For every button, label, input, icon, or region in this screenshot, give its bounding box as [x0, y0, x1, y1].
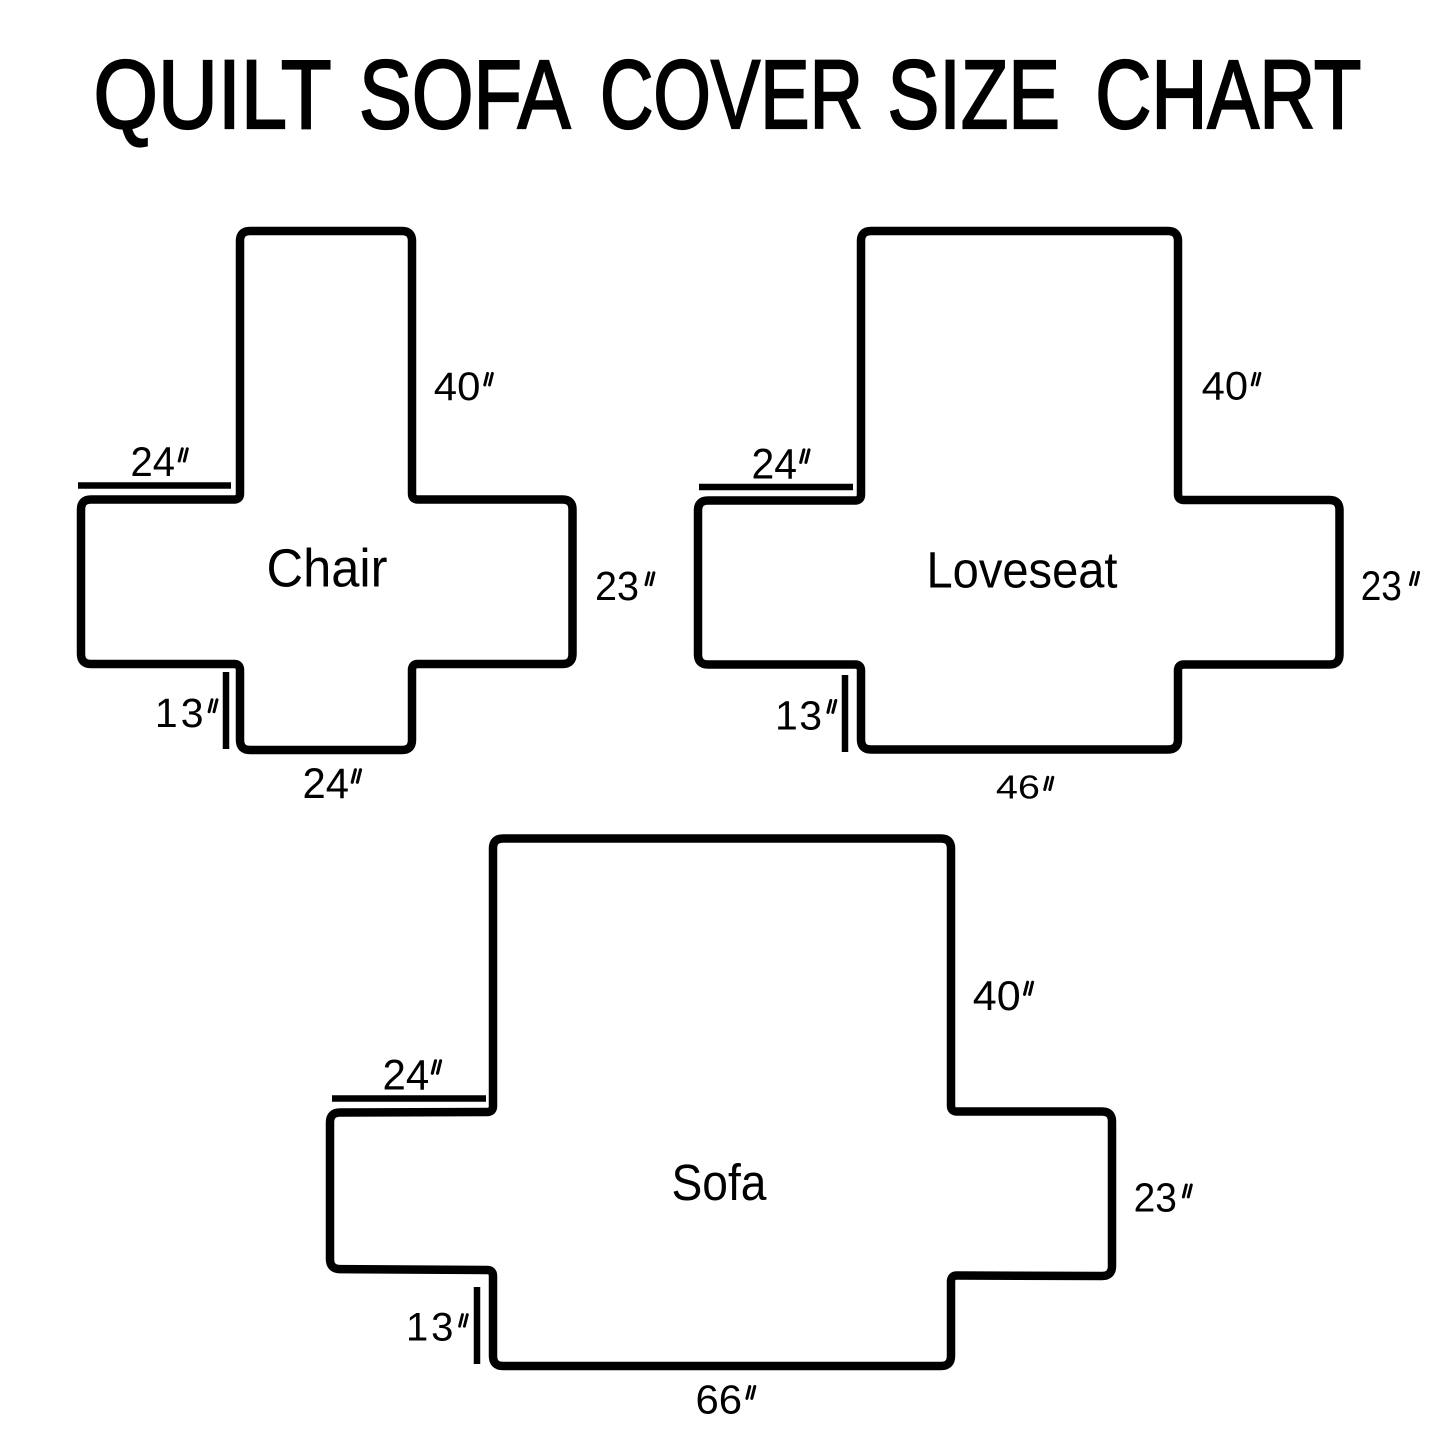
svg-text:23: 23	[1361, 562, 1402, 609]
svg-text:3: 3	[181, 690, 204, 736]
svg-text:24: 24	[383, 1052, 430, 1100]
svg-text:QUILT: QUILT	[94, 40, 332, 149]
svg-text:3: 3	[799, 692, 822, 738]
svg-text:SOFA: SOFA	[359, 40, 571, 149]
svg-text:40: 40	[434, 365, 481, 409]
svg-text:1: 1	[155, 690, 178, 736]
svg-text:40: 40	[1202, 365, 1248, 409]
svg-text:40: 40	[973, 972, 1021, 1019]
svg-text:3: 3	[431, 1305, 453, 1349]
svg-text:COVER: COVER	[600, 40, 863, 149]
svg-text:CHART: CHART	[1095, 40, 1361, 149]
svg-text:46: 46	[996, 769, 1040, 806]
svg-text:SIZE: SIZE	[888, 40, 1061, 149]
svg-text:23: 23	[595, 563, 639, 609]
svg-text:1: 1	[406, 1305, 428, 1349]
svg-text:24: 24	[752, 440, 798, 488]
svg-text:Loveseat: Loveseat	[927, 542, 1118, 599]
svg-text:1: 1	[775, 692, 798, 738]
svg-text:Sofa: Sofa	[672, 1154, 768, 1211]
svg-text:66: 66	[696, 1377, 743, 1423]
svg-text:24: 24	[303, 760, 350, 808]
svg-text:23: 23	[1134, 1174, 1177, 1220]
svg-text:24: 24	[131, 438, 176, 485]
svg-text:Chair: Chair	[267, 539, 388, 599]
